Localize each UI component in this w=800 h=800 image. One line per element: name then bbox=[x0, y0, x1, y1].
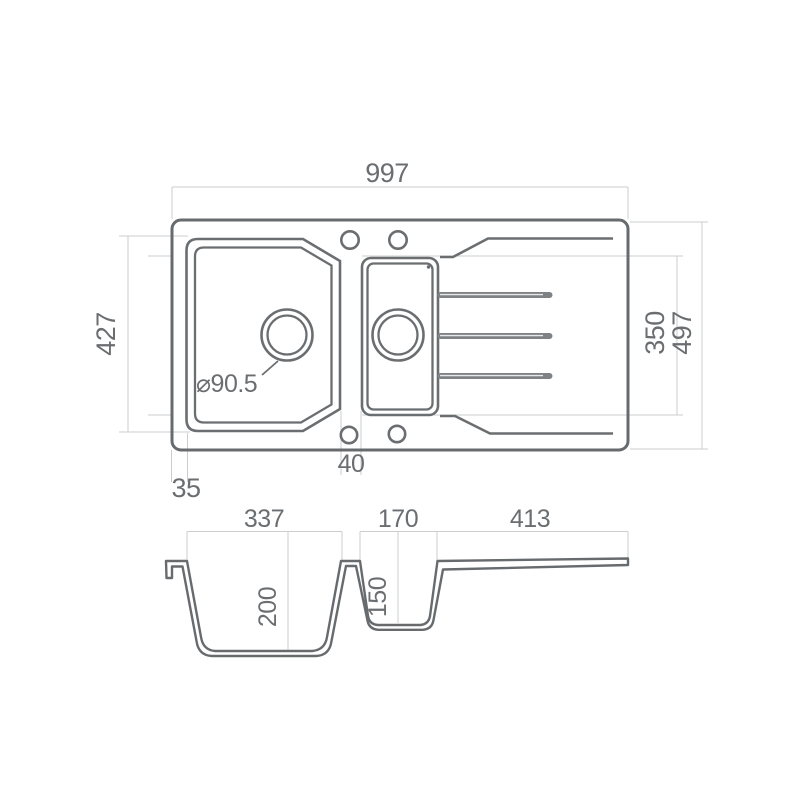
dim-rim-offset-label: 35 bbox=[171, 473, 200, 503]
dim-overall-depth-label: 497 bbox=[667, 311, 697, 355]
main-bowl-drain-inner bbox=[268, 316, 307, 355]
dim-half-bowl-width-label: 170 bbox=[378, 505, 418, 533]
dim-main-bowl-width-label: 337 bbox=[244, 505, 284, 533]
top-view: 997 427 350 497 35 40 ⌀90.5 bbox=[91, 158, 708, 503]
section-profile bbox=[166, 559, 628, 657]
main-bowl-outer-outline bbox=[187, 239, 341, 431]
drainboard-bottom-edge bbox=[440, 416, 613, 434]
drain-diameter-leader bbox=[262, 361, 278, 375]
dim-drainboard-width-label: 413 bbox=[510, 505, 550, 533]
half-bowl-overflow-dot bbox=[427, 265, 430, 268]
dim-main-bowl-depth-label: 200 bbox=[254, 587, 282, 627]
half-bowl-drain-inner bbox=[379, 316, 418, 355]
dim-413-lines bbox=[437, 532, 628, 560]
faucet-hole-top-left bbox=[341, 231, 358, 248]
extension-lines-top-view bbox=[119, 187, 708, 482]
dim-337-lines bbox=[187, 532, 342, 563]
dim-half-bowl-depth-label: 150 bbox=[364, 577, 392, 617]
section-view: 337 170 413 200 150 bbox=[166, 505, 628, 656]
drainboard-grooves bbox=[438, 292, 553, 379]
dim-997-lines bbox=[172, 187, 628, 219]
half-bowl-drain-outer bbox=[373, 310, 424, 361]
dim-divider-width-label: 40 bbox=[338, 450, 365, 478]
faucet-hole-top-right bbox=[389, 231, 406, 248]
dim-bowl-length-label: 427 bbox=[91, 312, 121, 356]
drawing-canvas: 997 427 350 497 35 40 ⌀90.5 337 170 413 … bbox=[0, 0, 800, 800]
dim-drain-diameter-label: ⌀90.5 bbox=[196, 370, 257, 398]
dim-right-section-length-label: 350 bbox=[640, 311, 670, 355]
dim-427-lines bbox=[119, 236, 190, 432]
main-bowl-drain-outer bbox=[262, 310, 313, 361]
faucet-hole-bottom-left bbox=[341, 427, 357, 443]
drainboard-top-edge bbox=[440, 239, 613, 258]
faucet-hole-bottom-right bbox=[389, 426, 405, 442]
dim-overall-width-label: 997 bbox=[365, 158, 409, 188]
sink-technical-drawing: 997 427 350 497 35 40 ⌀90.5 337 170 413 … bbox=[0, 0, 800, 800]
